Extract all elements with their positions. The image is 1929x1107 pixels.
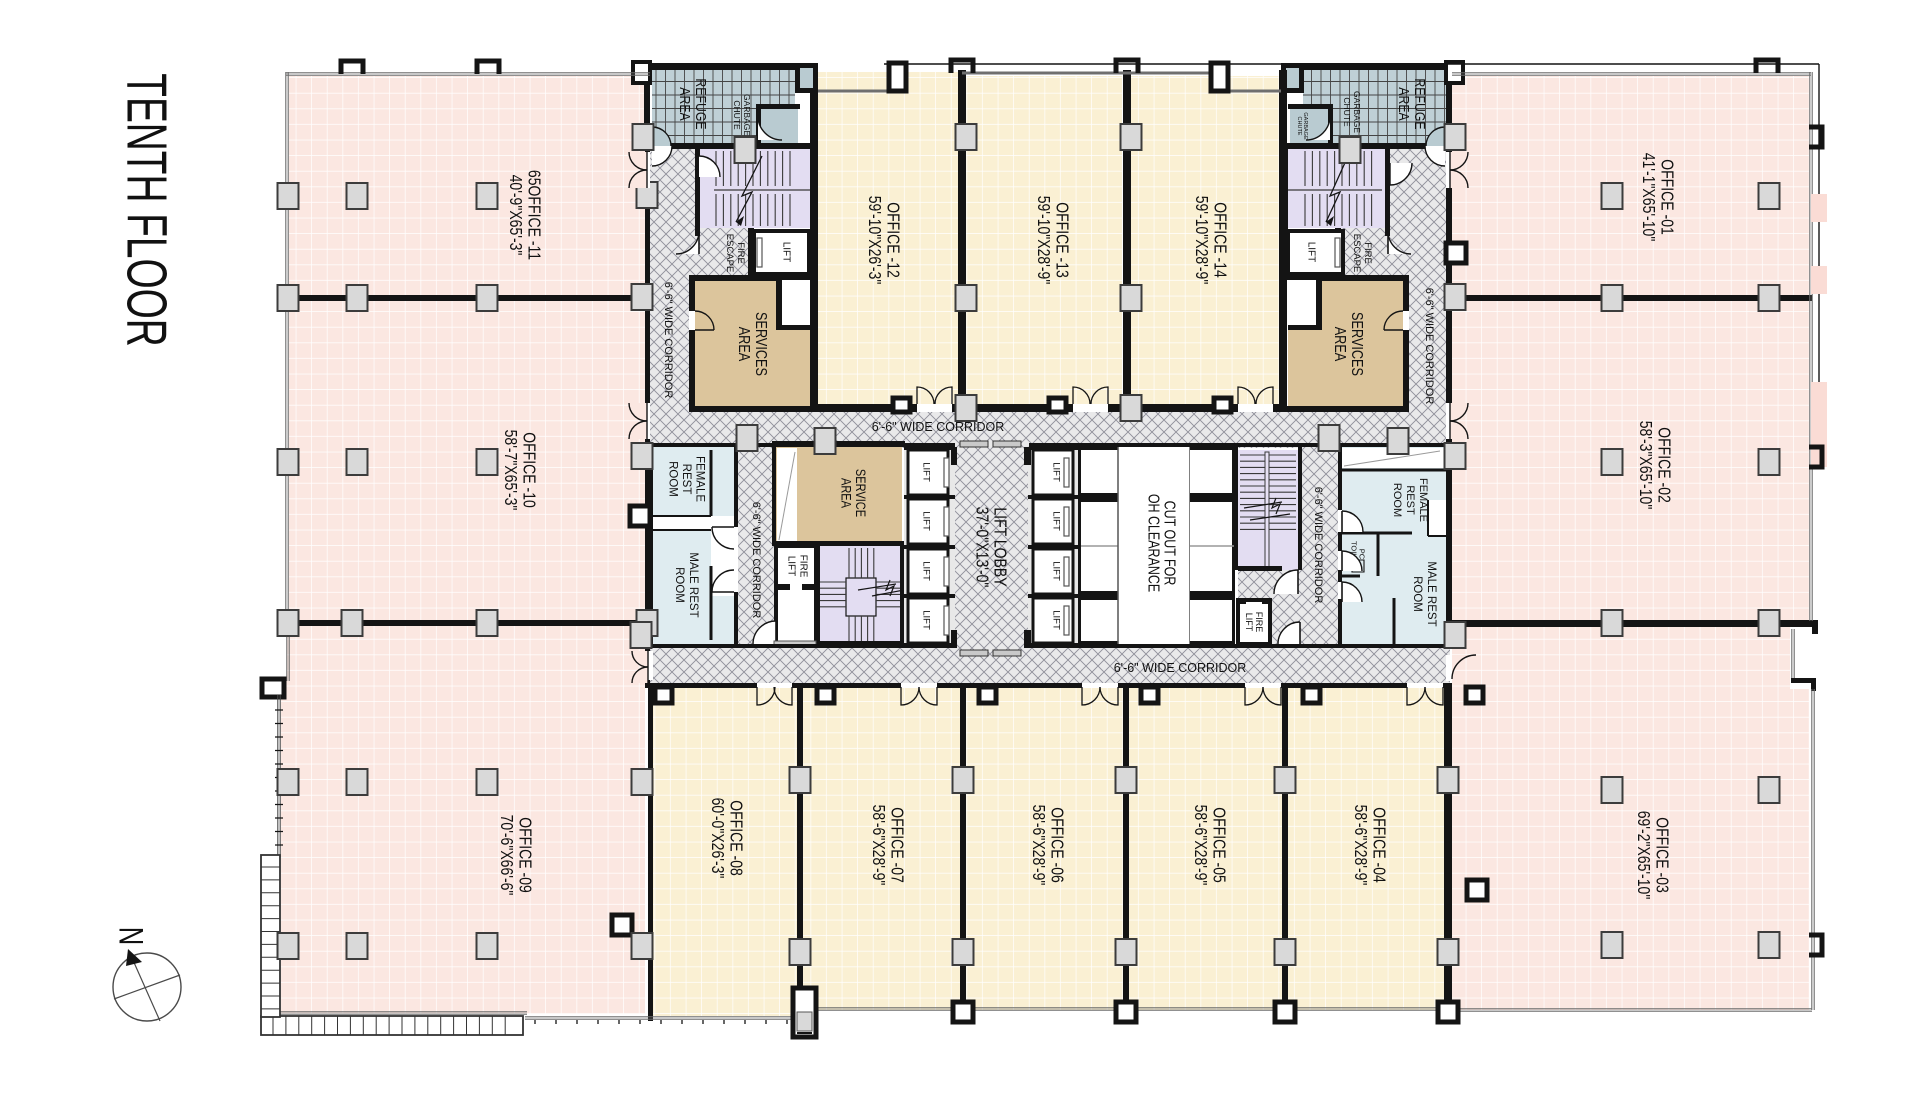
svg-text:OFFICE -0558'-6"X28'-9": OFFICE -0558'-6"X28'-9" bbox=[1191, 805, 1229, 886]
svg-text:TENTH FLOOR: TENTH FLOOR bbox=[114, 73, 177, 346]
svg-text:LIFT LOBBY37'-0"X13'-0": LIFT LOBBY37'-0"X13'-0" bbox=[972, 507, 1010, 588]
svg-text:LIFT: LIFT bbox=[921, 561, 932, 581]
svg-text:OFFICE -0458'-6"X28'-9": OFFICE -0458'-6"X28'-9" bbox=[1351, 805, 1389, 886]
svg-text:LIFT: LIFT bbox=[921, 511, 932, 531]
svg-text:OFFICE -1259'-10"X26'-3": OFFICE -1259'-10"X26'-3" bbox=[865, 196, 903, 285]
svg-text:LIFT: LIFT bbox=[1051, 511, 1062, 531]
svg-text:6'-6" WIDE CORRIDOR: 6'-6" WIDE CORRIDOR bbox=[662, 282, 674, 399]
svg-text:LIFT: LIFT bbox=[1051, 610, 1062, 630]
svg-text:LIFT: LIFT bbox=[921, 462, 932, 482]
svg-text:LIFT: LIFT bbox=[781, 242, 792, 263]
svg-text:OFFICE -1359'-10"X28'-9": OFFICE -1359'-10"X28'-9" bbox=[1034, 196, 1072, 285]
svg-text:OFFICE -1459'-10"X28'-9": OFFICE -1459'-10"X28'-9" bbox=[1192, 196, 1230, 285]
svg-text:65OFFICE -1140'-9"X65'-3": 65OFFICE -1140'-9"X65'-3" bbox=[506, 170, 544, 260]
svg-text:OFFICE -0970'-6"X66'-6": OFFICE -0970'-6"X66'-6" bbox=[497, 815, 535, 896]
svg-text:6'-6" WIDE CORRIDOR: 6'-6" WIDE CORRIDOR bbox=[872, 420, 1005, 434]
svg-text:OFFICE -0258'-3"X65'-10": OFFICE -0258'-3"X65'-10" bbox=[1636, 421, 1674, 510]
svg-text:OFFICE -1058'-7"X65'-3": OFFICE -1058'-7"X65'-3" bbox=[501, 430, 539, 511]
svg-text:CUT OUT FOROH CLEARANCE: CUT OUT FOROH CLEARANCE bbox=[1144, 494, 1178, 592]
svg-text:LIFT: LIFT bbox=[1051, 561, 1062, 581]
svg-text:OFFICE -0369'-2"X65'-10": OFFICE -0369'-2"X65'-10" bbox=[1634, 811, 1672, 900]
svg-text:6'-6" WIDE CORRIDOR: 6'-6" WIDE CORRIDOR bbox=[1423, 288, 1435, 405]
svg-text:N: N bbox=[111, 927, 148, 945]
svg-text:LIFT: LIFT bbox=[1051, 462, 1062, 482]
svg-text:OFFICE -0758'-6"X28'-9": OFFICE -0758'-6"X28'-9" bbox=[869, 805, 907, 886]
svg-text:6'-6" WIDE CORRIDOR: 6'-6" WIDE CORRIDOR bbox=[750, 502, 762, 619]
svg-text:LIFT: LIFT bbox=[1306, 242, 1317, 263]
svg-text:OFFICE -0141'-1"X65'-10": OFFICE -0141'-1"X65'-10" bbox=[1639, 153, 1677, 242]
svg-text:OFFICE -0658'-6"X28'-9": OFFICE -0658'-6"X28'-9" bbox=[1029, 805, 1067, 886]
svg-text:OFFICE -0860'-0"X26'-3": OFFICE -0860'-0"X26'-3" bbox=[708, 798, 746, 879]
svg-text:FIRELIFT: FIRELIFT bbox=[786, 555, 809, 578]
svg-text:6'-6" WIDE CORRIDOR: 6'-6" WIDE CORRIDOR bbox=[1114, 661, 1247, 675]
svg-text:LIFT: LIFT bbox=[921, 610, 932, 630]
svg-text:FIRELIFT: FIRELIFT bbox=[1244, 612, 1264, 633]
svg-text:6'-6" WIDE CORRIDOR: 6'-6" WIDE CORRIDOR bbox=[1312, 487, 1324, 604]
